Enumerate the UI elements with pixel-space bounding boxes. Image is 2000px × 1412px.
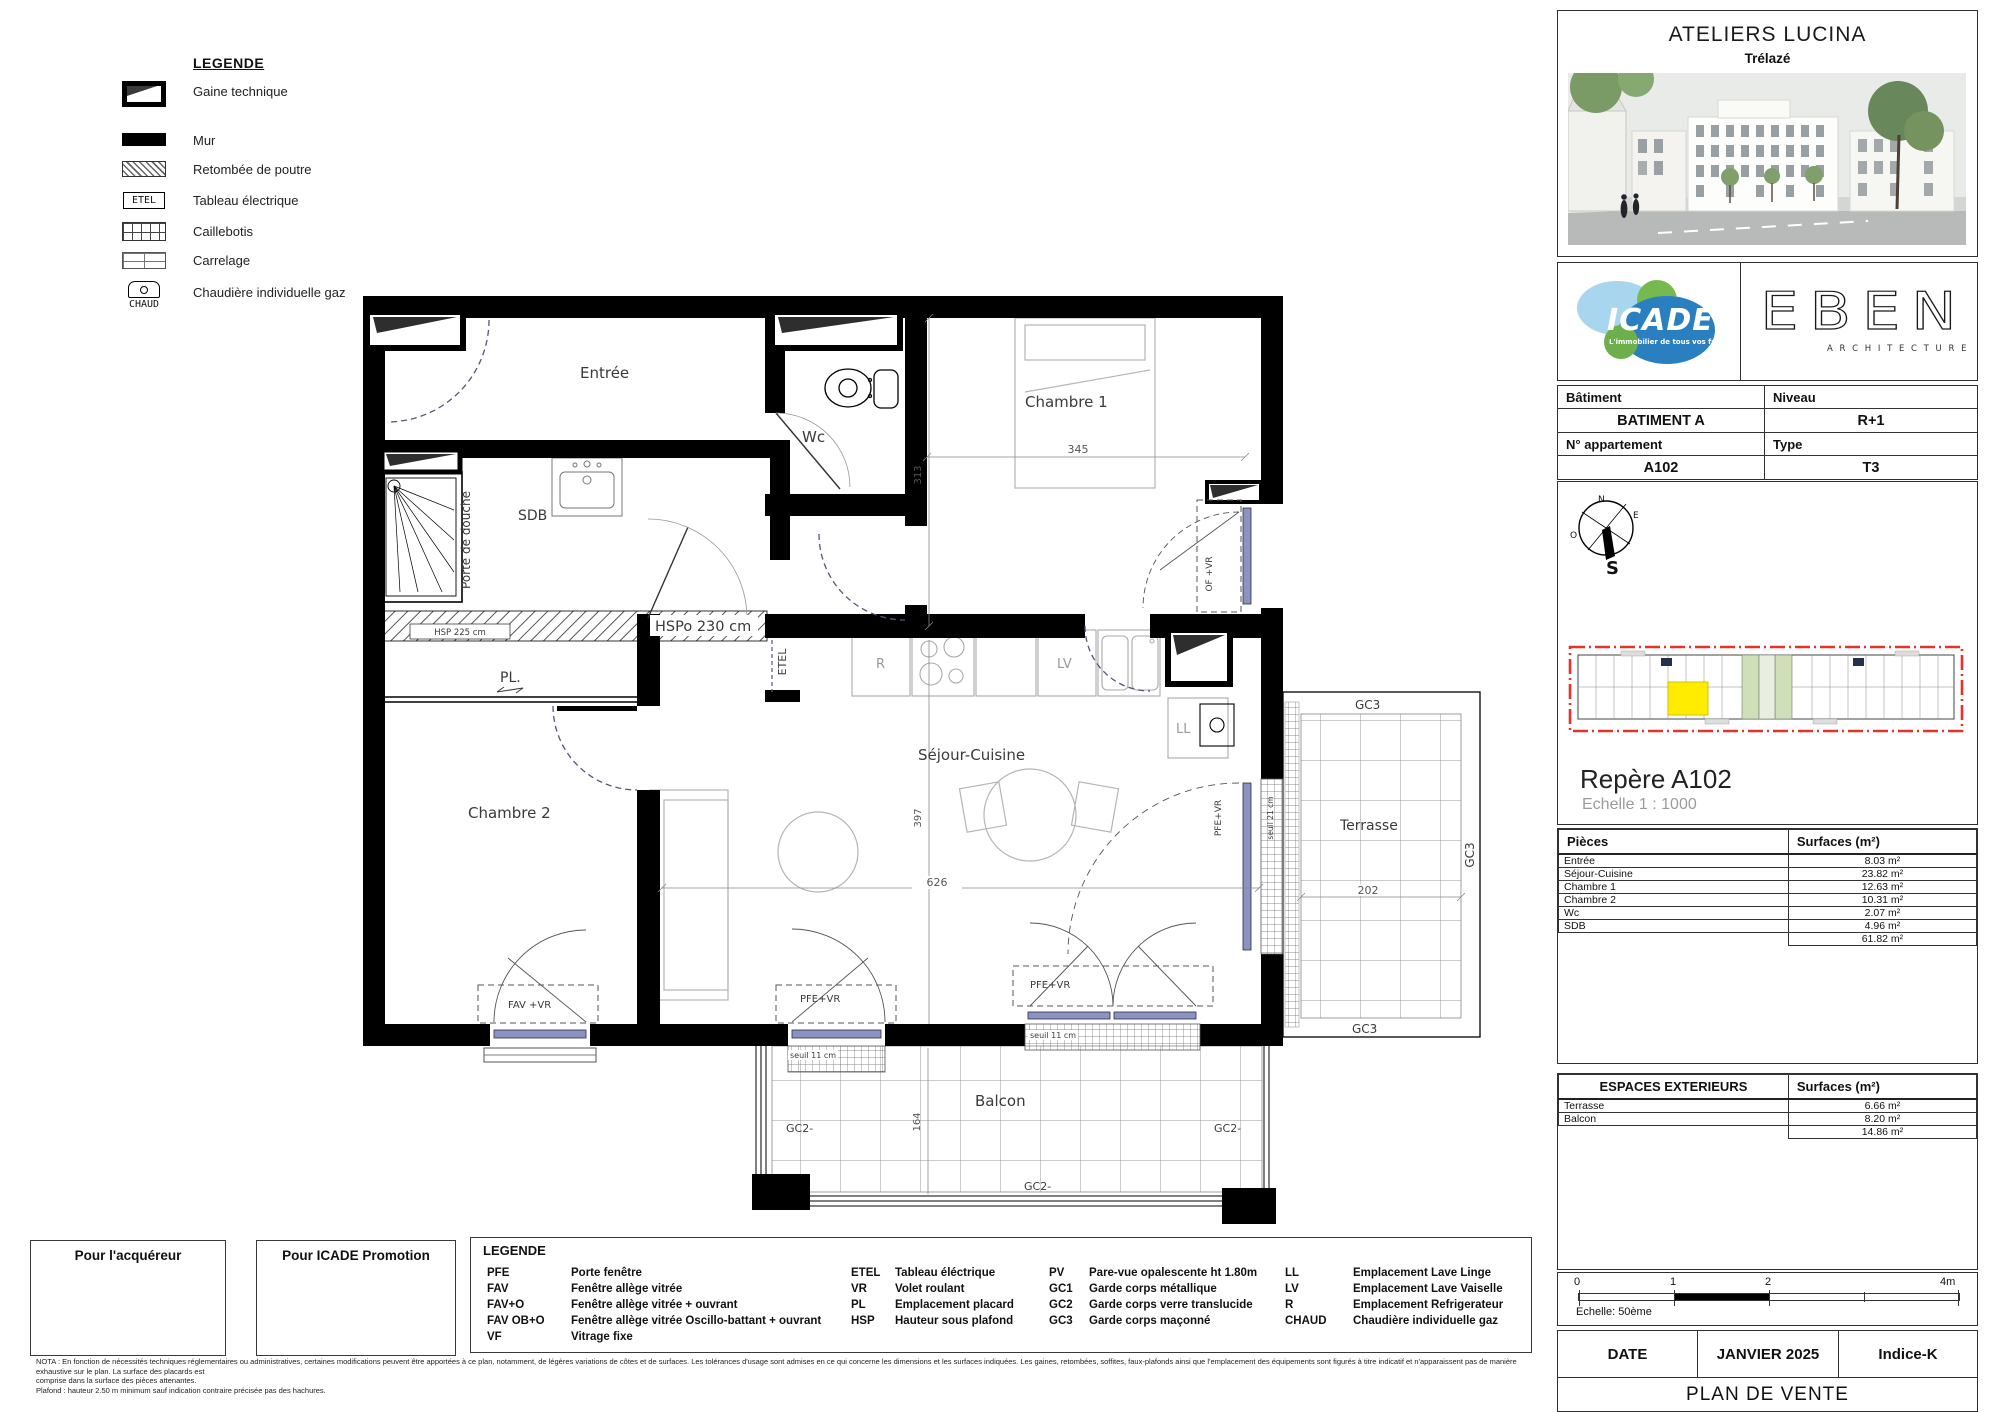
placard-lines <box>385 697 637 702</box>
piece-surface: 12.63 m² <box>1788 881 1976 894</box>
piece-surface: 8.03 m² <box>1788 854 1976 868</box>
table-row: Entrée8.03 m² <box>1559 854 1977 868</box>
abbr: LL <box>1285 1267 1353 1279</box>
dim-202: 202 <box>1358 884 1379 897</box>
espace-name: Terrasse <box>1559 1099 1789 1113</box>
project-box: ATELIERS LUCINA Trélazé <box>1557 10 1978 257</box>
label-gc3-top: GC3 <box>1355 698 1380 712</box>
room-label-chambre1: Chambre 1 <box>1025 393 1108 411</box>
plan-de-vente-sheet: Entrée Wc Chambre 1 SDB Porte de douche … <box>0 0 2000 1412</box>
abbr: HSP <box>851 1315 895 1327</box>
table-row: Chambre 112.63 m² <box>1559 881 1977 894</box>
gaine-technique-symbol <box>122 81 166 107</box>
legend-title: LEGENDE <box>193 55 264 71</box>
legend-item-label: Tableau électrique <box>193 193 299 208</box>
sdb-door-leaf <box>648 527 688 618</box>
legend-item-carrelage: Carrelage <box>95 252 405 282</box>
dim-313: 313 <box>913 465 924 484</box>
label-fav-vr: FAV +VR <box>508 1000 551 1011</box>
abbr-desc: Fenêtre allège vitrée <box>571 1283 682 1295</box>
logos-box: ICADE L'immobilier de tous vos futurs EB… <box>1557 262 1978 381</box>
legend-group-4: LLEmplacement Lave Linge LVEmplacement L… <box>1285 1265 1503 1329</box>
shower <box>380 472 462 602</box>
icade-tagline: L'immobilier de tous vos futurs <box>1609 338 1732 346</box>
legend-group-1: PFEPorte fenêtre FAVFenêtre allège vitré… <box>487 1265 821 1345</box>
exterieurs-total: 14.86 m² <box>1788 1126 1976 1139</box>
abbr-desc: Chaudière individuelle gaz <box>1353 1315 1498 1327</box>
scalebar-tick-1: 1 <box>1670 1276 1676 1288</box>
table-row: Chambre 210.31 m² <box>1559 894 1977 907</box>
signature-box-acquereur: Pour l'acquéreur <box>30 1240 226 1356</box>
caillebotis-symbol <box>122 222 166 241</box>
coffee-table <box>778 812 858 892</box>
table-total-row: 14.86 m² <box>1559 1126 1977 1139</box>
table-row: Terrasse6.66 m² <box>1559 1099 1977 1113</box>
chaudiere-symbol-text: CHAUD <box>129 299 159 310</box>
legend-item-label: Mur <box>193 133 215 148</box>
window-fav-chambre2 <box>478 930 598 1062</box>
abbr-desc: Emplacement Lave Linge <box>1353 1267 1491 1279</box>
abbr-desc: Garde corps métallique <box>1089 1283 1217 1295</box>
abbr-desc: Hauteur sous plafond <box>895 1315 1013 1327</box>
legend-item-label: Gaine technique <box>193 84 288 99</box>
keyplan-box: N E O S <box>1557 481 1978 825</box>
scalebar-box: 0 1 2 4m Echelle: 50ème <box>1557 1272 1978 1326</box>
repere-title: Repère A102 <box>1580 764 1732 795</box>
project-title: ATELIERS LUCINA <box>1558 23 1977 47</box>
compass-e: E <box>1633 511 1639 521</box>
doc-title: PLAN DE VENTE <box>1558 1378 1977 1411</box>
espace-surface: 6.66 m² <box>1788 1099 1976 1113</box>
batiment-value: BATIMENT A <box>1558 409 1765 433</box>
legend-item-label: Carrelage <box>193 253 250 268</box>
tableau-electrique-symbol: ETEL <box>123 192 165 209</box>
room-label-balcon: Balcon <box>975 1092 1026 1110</box>
dim-397: 397 <box>913 808 924 827</box>
appartement-value: A102 <box>1558 456 1765 479</box>
scalebar-tick-2: 2 <box>1765 1276 1771 1288</box>
label-gc2-left: GC2- <box>786 1122 813 1135</box>
retombee-symbol <box>122 161 166 177</box>
footer-indice: Indice-K <box>1839 1331 1977 1377</box>
appartement-label: N° appartement <box>1558 433 1765 456</box>
label-gc2-bottom: GC2- <box>1024 1180 1051 1193</box>
abbr: LV <box>1285 1283 1353 1295</box>
surfaces-box: Pièces Surfaces (m²) Entrée8.03 m² Séjou… <box>1557 828 1978 1064</box>
balcon-post-right <box>1222 1188 1276 1224</box>
icade-wordmark: ICADE <box>1607 303 1714 338</box>
piece-name: SDB <box>1559 920 1789 933</box>
windows <box>478 500 1283 1072</box>
scalebar-graphic <box>1578 1293 1960 1301</box>
footer-date-value: JANVIER 2025 <box>1698 1331 1839 1377</box>
abbr-desc: Volet roulant <box>895 1283 964 1295</box>
room-label-sdb: SDB <box>518 508 547 524</box>
legend-panel: LEGENDE Gaine technique Mur Retombée de … <box>95 45 405 335</box>
type-value: T3 <box>1765 456 1977 479</box>
scalebar-tick-0: 0 <box>1574 1276 1580 1288</box>
abbreviations-legend: LEGENDE PFEPorte fenêtre FAVFenêtre allè… <box>470 1237 1532 1353</box>
abbr: GC3 <box>1049 1315 1089 1327</box>
abbr: R <box>1285 1299 1353 1311</box>
balcon-area <box>752 1046 1276 1224</box>
abbr-desc: Fenêtre allège vitrée + ouvrant <box>571 1299 738 1311</box>
surfaces-col-surfaces: Surfaces (m²) <box>1788 830 1976 855</box>
abbr-desc: Emplacement Refrigerateur <box>1353 1299 1503 1311</box>
furniture <box>650 318 1155 1000</box>
keyplan-thumbnail <box>1565 642 1969 738</box>
nota-line: Plafond : hauteur 2.50 m minimum sauf in… <box>36 1386 1536 1396</box>
abbr: ETEL <box>851 1267 895 1279</box>
label-of-vr: OF +VR <box>1205 556 1215 591</box>
abbr-desc: Emplacement placard <box>895 1299 1014 1311</box>
signature-box-promotion: Pour ICADE Promotion <box>256 1240 456 1356</box>
abbr-desc: Pare-vue opalescente ht 1.80m <box>1089 1267 1257 1279</box>
espace-name: Balcon <box>1559 1113 1789 1126</box>
repere-echelle: Echelle 1 : 1000 <box>1582 796 1697 814</box>
niveau-value: R+1 <box>1765 409 1977 433</box>
scalebar-label: Echelle: 50ème <box>1576 1306 1652 1318</box>
piece-surface: 2.07 m² <box>1788 907 1976 920</box>
room-label-wc: Wc <box>802 428 825 446</box>
table-row: SDB4.96 m² <box>1559 920 1977 933</box>
carrelage-symbol <box>122 252 166 269</box>
abbr: GC2 <box>1049 1299 1089 1311</box>
dim-626: 626 <box>927 876 948 889</box>
piece-name: Wc <box>1559 907 1789 920</box>
label-hspo: HSPo 230 cm <box>655 619 751 635</box>
label-dishwasher: LV <box>1057 657 1072 672</box>
compass-n: N <box>1598 495 1605 505</box>
abbr: FAV+O <box>487 1299 571 1311</box>
piece-name: Séjour-Cuisine <box>1559 868 1789 881</box>
bathroom-fixtures <box>380 369 898 602</box>
legend-item-retombee: Retombée de poutre <box>95 161 405 191</box>
label-pfe-vr-1: PFE+VR <box>800 994 840 1005</box>
compass-o: O <box>1570 531 1577 541</box>
icade-logo: ICADE L'immobilier de tous vos futurs <box>1558 263 1741 380</box>
sdb-sink <box>552 458 622 516</box>
nota-text: NOTA : En fonction de nécessités techniq… <box>36 1357 1536 1395</box>
sofa <box>650 790 728 1000</box>
chambre1-door-arc <box>819 534 905 620</box>
legend-item-label: Chaudière individuelle gaz <box>193 285 346 300</box>
surfaces-total: 61.82 m² <box>1788 933 1976 946</box>
legend-group-2: ETELTableau éléctrique VRVolet roulant P… <box>851 1265 1014 1329</box>
footer-date-label: DATE <box>1558 1331 1698 1377</box>
piece-surface: 10.31 m² <box>1788 894 1976 907</box>
keyplan-highlighted-unit <box>1668 682 1708 715</box>
abbr-desc: Emplacement Lave Vaiselle <box>1353 1283 1503 1295</box>
title-block-sidebar: ATELIERS LUCINA Trélazé <box>1557 10 1978 1405</box>
piece-surface: 4.96 m² <box>1788 920 1976 933</box>
abbr: CHAUD <box>1285 1315 1353 1327</box>
room-label-pl: PL. <box>500 670 521 686</box>
dining-table <box>984 769 1076 861</box>
compass-s: S <box>1606 558 1619 576</box>
abbreviations-legend-title: LEGENDE <box>483 1243 546 1258</box>
label-pfe-vr-terrasse: PFE+VR <box>1214 800 1224 836</box>
table-total-row: 61.82 m² <box>1559 933 1977 946</box>
eben-logo: EBEN A R C H I T E C T U R E <box>1741 263 1977 380</box>
chambre2-door-arc <box>553 706 637 790</box>
abbr-desc: Fenêtre allège vitrée Oscillo-battant + … <box>571 1315 821 1327</box>
label-gc3-right: GC3 <box>1463 842 1477 867</box>
niveau-label: Niveau <box>1765 386 1977 409</box>
compass-icon: N E O S <box>1568 490 1644 576</box>
terrasse-area <box>1283 692 1480 1037</box>
chaudiere-symbol <box>128 281 160 298</box>
label-gc2-right: GC2- <box>1214 1122 1241 1135</box>
building-render <box>1568 73 1966 245</box>
legend-item-gaine: Gaine technique <box>95 81 405 111</box>
surfaces-table: Pièces Surfaces (m²) Entrée8.03 m² Séjou… <box>1558 829 1977 946</box>
exterieurs-table: ESPACES EXTERIEURS Surfaces (m²) Terrass… <box>1558 1074 1977 1139</box>
piece-name: Chambre 1 <box>1559 881 1789 894</box>
batiment-label: Bâtiment <box>1558 386 1765 409</box>
abbr-desc: Vitrage fixe <box>571 1331 633 1343</box>
legend-item-mur: Mur <box>95 133 405 163</box>
abbr: VF <box>487 1331 571 1343</box>
nota-line: comprise dans la surface des pièces atte… <box>36 1376 1536 1386</box>
legend-group-3: PVPare-vue opalescente ht 1.80m GC1Garde… <box>1049 1265 1257 1329</box>
abbr: FAV <box>487 1283 571 1295</box>
signature-box-title: Pour l'acquéreur <box>31 1248 225 1263</box>
label-gc3-bottom: GC3 <box>1352 1022 1377 1036</box>
window-pfe-terrasse <box>1068 779 1283 954</box>
window-of-chambre1 <box>1143 500 1261 612</box>
label-etel: ETEL <box>776 648 789 676</box>
label-fridge: R <box>876 657 885 672</box>
abbr: FAV OB+O <box>487 1315 571 1327</box>
table-row: Wc2.07 m² <box>1559 907 1977 920</box>
abbr: VR <box>851 1283 895 1295</box>
abbr: GC1 <box>1049 1283 1089 1295</box>
table-row: Balcon8.20 m² <box>1559 1113 1977 1126</box>
info-table: Bâtiment Niveau BATIMENT A R+1 N° appart… <box>1557 385 1978 480</box>
legend-item-etel: ETEL Tableau électrique <box>95 192 405 222</box>
abbr: PL <box>851 1299 895 1311</box>
label-hsp-beam: HSP 225 cm <box>434 628 486 638</box>
exterieurs-box: ESPACES EXTERIEURS Surfaces (m²) Terrass… <box>1557 1073 1978 1270</box>
label-seuil21: seuil 21 cm <box>1266 796 1275 839</box>
exterieurs-col-espaces: ESPACES EXTERIEURS <box>1559 1075 1789 1100</box>
room-label-entree: Entrée <box>580 364 629 382</box>
piece-name: Entrée <box>1559 854 1789 868</box>
room-label-chambre2: Chambre 2 <box>468 804 551 822</box>
legend-item-caillebotis: Caillebotis <box>95 222 405 252</box>
abbr-desc: Porte fenêtre <box>571 1267 642 1279</box>
room-label-terrasse: Terrasse <box>1339 818 1398 834</box>
table-row: Séjour-Cuisine23.82 m² <box>1559 868 1977 881</box>
abbr-desc: Garde corps maçonné <box>1089 1315 1210 1327</box>
eben-wordmark: EBEN <box>1761 281 1968 341</box>
legend-item-label: Caillebotis <box>193 224 253 239</box>
balcon-post-left <box>752 1174 810 1210</box>
room-label-sejour: Séjour-Cuisine <box>918 746 1025 764</box>
scalebar-tick-4m: 4m <box>1940 1276 1955 1288</box>
piece-surface: 23.82 m² <box>1788 868 1976 881</box>
exterieurs-col-surfaces: Surfaces (m²) <box>1788 1075 1976 1100</box>
mur-symbol <box>122 133 166 146</box>
piece-name: Chambre 2 <box>1559 894 1789 907</box>
legend-item-label: Retombée de poutre <box>193 162 312 177</box>
dim-164: 164 <box>912 1112 923 1131</box>
label-seuil11-2: seuil 11 cm <box>1030 1031 1076 1040</box>
legend-item-chaud: CHAUD Chaudière individuelle gaz <box>95 281 405 311</box>
abbr-desc: Tableau éléctrique <box>895 1267 995 1279</box>
espace-surface: 8.20 m² <box>1788 1113 1976 1126</box>
project-city: Trélazé <box>1558 51 1977 66</box>
toilet <box>825 369 898 408</box>
hob <box>912 630 974 696</box>
footer-box: DATE JANVIER 2025 Indice-K PLAN DE VENTE <box>1557 1330 1978 1412</box>
label-washer: LL <box>1176 722 1191 737</box>
label-seuil11-1: seuil 11 cm <box>790 1051 836 1060</box>
abbr: PFE <box>487 1267 571 1279</box>
signature-box-title: Pour ICADE Promotion <box>257 1248 455 1263</box>
label-pfe-vr-2: PFE+VR <box>1030 980 1070 991</box>
abbr: PV <box>1049 1267 1089 1279</box>
type-label: Type <box>1765 433 1977 456</box>
surfaces-col-pieces: Pièces <box>1559 830 1789 855</box>
abbr-desc: Garde corps verre translucide <box>1089 1299 1253 1311</box>
dim-345: 345 <box>1068 443 1089 456</box>
nota-line: NOTA : En fonction de nécessités techniq… <box>36 1357 1536 1376</box>
eben-architecture: A R C H I T E C T U R E <box>1827 344 1968 354</box>
label-porte-de-douche: Porte de douche <box>459 491 473 589</box>
